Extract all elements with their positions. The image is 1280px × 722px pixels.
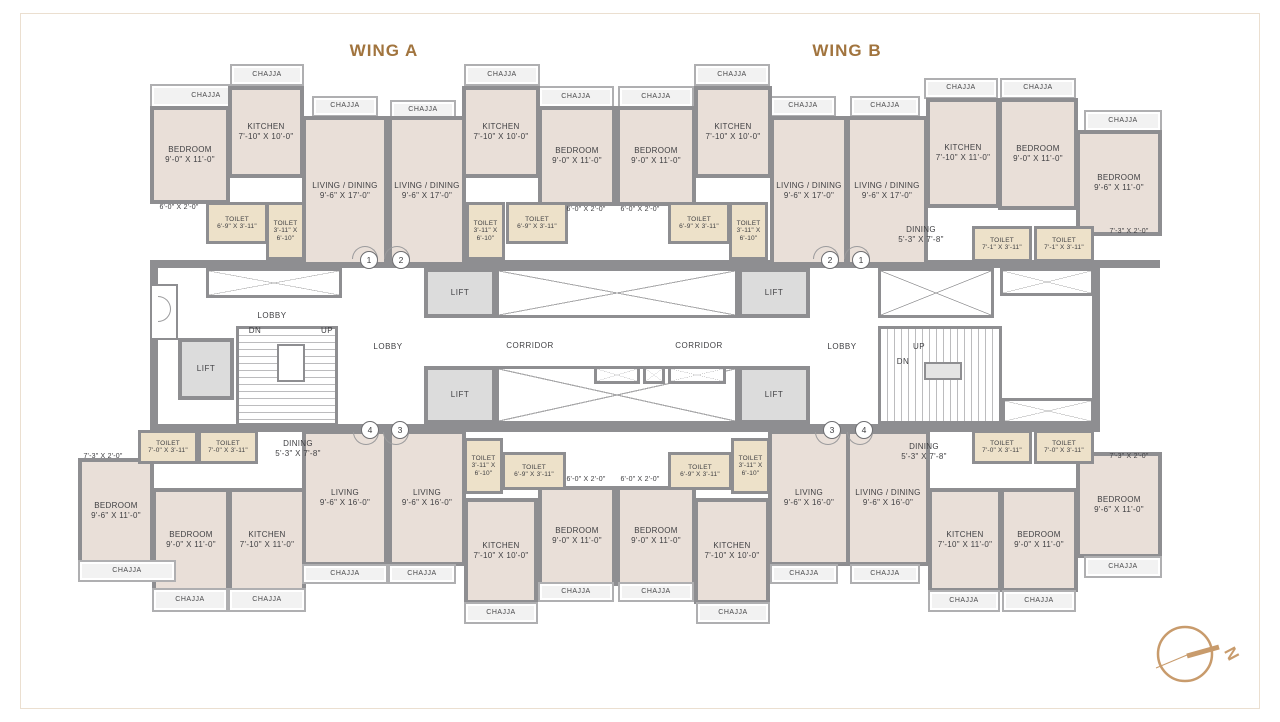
toilet-b1-1-label: TOILET (990, 237, 1014, 244)
lift-a-top-label: LIFT (451, 288, 469, 298)
chajja-a2-living-label: CHAJJA (408, 106, 437, 115)
chajja-a4-living: CHAJJA (302, 564, 388, 584)
chajja-a1-kitchen: CHAJJA (230, 64, 304, 86)
kitchen-b2-dims: 7'-10" X 10'-0" (705, 132, 760, 142)
kitchen-b4: KITCHEN7'-10" X 11'-0" (928, 488, 1002, 592)
chajja-b1-bedroom1: CHAJJA (1000, 78, 1076, 99)
toilet-b2-2-dims: 3'-11" X 6'-10" (732, 227, 765, 242)
chajja-b3-living: CHAJJA (770, 564, 838, 584)
chajja-a3-living: CHAJJA (388, 564, 456, 584)
dim-a2: 6'-0" X 2'-0" (560, 205, 612, 215)
toilet-a3-2-dims: 6'-9" X 3'-11" (514, 471, 554, 478)
flat-marker-a3-label: 3 (398, 425, 403, 436)
chajja-a1-living: CHAJJA (312, 96, 378, 117)
kitchen-a3: KITCHEN7'-10" X 10'-0" (464, 498, 538, 604)
dn-label-b-label: DN (897, 357, 910, 367)
kitchen-b4-dims: 7'-10" X 11'-0" (938, 540, 992, 550)
up-label-a-label: UP (321, 326, 333, 336)
living-dining-a2: LIVING / DINING9'-6" X 17'-0" (388, 116, 466, 266)
bedroom-a4-1-label: BEDROOM (94, 501, 137, 511)
flat-marker-a4-label: 4 (368, 425, 373, 436)
dim-a1-label: 6'-0" X 2'-0" (159, 204, 198, 213)
chajja-a1-living-label: CHAJJA (330, 102, 359, 111)
chajja-b4-kitchen-label: CHAJJA (949, 597, 978, 606)
bedroom-b2: BEDROOM9'-0" X 11'-0" (616, 106, 696, 206)
toilet-a2-1: TOILET3'-11" X 6'-10" (466, 202, 505, 260)
stair-landing-a (277, 344, 305, 382)
chajja-a1-kitchen-label: CHAJJA (252, 71, 281, 80)
dim-b1-label: 7'-3" X 2'-0" (1109, 228, 1148, 237)
flat-marker-b1: 1 (852, 251, 870, 269)
chajja-a4-bedroom2: CHAJJA (152, 588, 228, 612)
chajja-b1-living-label: CHAJJA (870, 102, 899, 111)
flat-marker-a2-label: 2 (399, 255, 404, 266)
toilet-a1-1-dims: 6'-9" X 3'-11" (217, 223, 257, 230)
chajja-a3-bedroom-label: CHAJJA (561, 588, 590, 597)
lobby-b-label: LOBBY (816, 341, 868, 353)
bedroom-b2-dims: 9'-0" X 11'-0" (631, 156, 681, 166)
kitchen-a1: KITCHEN7'-10" X 10'-0" (228, 86, 304, 178)
living-dining-b2-dims: 9'-6" X 17'-0" (784, 191, 834, 201)
toilet-a4-2-dims: 7'-0" X 3'-11" (208, 447, 248, 454)
chajja-b2-kitchen-label: CHAJJA (717, 71, 746, 80)
kitchen-b1-label: KITCHEN (944, 143, 981, 153)
chajja-a3-kitchen-label: CHAJJA (486, 609, 515, 618)
chajja-a4-bedroom1: CHAJJA (78, 560, 176, 582)
toilet-b3-2-label: TOILET (739, 455, 763, 462)
living-dining-b1-dims: 9'-6" X 17'-0" (862, 191, 912, 201)
bedroom-b3-dims: 9'-0" X 11'-0" (631, 536, 681, 546)
toilet-a4-1: TOILET7'-0" X 3'-11" (138, 430, 198, 464)
kitchen-a1-dims: 7'-10" X 10'-0" (238, 132, 293, 142)
bedroom-a2: BEDROOM9'-0" X 11'-0" (538, 106, 616, 206)
toilet-b1-2-label: TOILET (1052, 237, 1076, 244)
duct-small-3 (668, 366, 726, 384)
dim-b1: 7'-3" X 2'-0" (1100, 227, 1158, 237)
flat-marker-a1: 1 (360, 251, 378, 269)
toilet-a3-1-label: TOILET (472, 455, 496, 462)
bedroom-b1-2: BEDROOM9'-6" X 11'-0" (1076, 130, 1162, 236)
dim-b2: 6'-0" X 2'-0" (614, 205, 666, 215)
chajja-a3-living-label: CHAJJA (407, 570, 436, 579)
chajja-b2-bedroom-label: CHAJJA (641, 93, 670, 102)
chajja-b1-kitchen: CHAJJA (924, 78, 998, 99)
toilet-b2-2: TOILET3'-11" X 6'-10" (729, 202, 768, 260)
toilet-b2-2-label: TOILET (737, 220, 761, 227)
bedroom-a4-2-dims: 9'-0" X 11'-0" (166, 540, 216, 550)
duct-core-a (206, 268, 342, 298)
lift-b-top: LIFT (738, 268, 810, 318)
chajja-a3-bedroom: CHAJJA (538, 582, 614, 602)
up-label-b-label: UP (913, 342, 925, 352)
dining-a4-label-dims: 5'-3" X 7'-8" (275, 449, 321, 459)
corridor-label-1-label: CORRIDOR (506, 341, 554, 351)
duct-top-central (496, 268, 738, 318)
duct-small-2 (643, 366, 665, 384)
toilet-b1-1: TOILET7'-1" X 3'-11" (972, 226, 1032, 262)
toilet-b2-1-label: TOILET (687, 216, 711, 223)
bedroom-a2-label: BEDROOM (555, 146, 598, 156)
living-dining-b4-label: LIVING / DINING (855, 488, 920, 498)
dim-a2-label: 6'-0" X 2'-0" (566, 206, 605, 215)
flat-marker-b4: 4 (855, 421, 873, 439)
toilet-a1-1-label: TOILET (225, 216, 249, 223)
toilet-b2-1: TOILET6'-9" X 3'-11" (668, 202, 730, 244)
bedroom-a4-1-dims: 9'-6" X 11'-0" (91, 511, 141, 521)
kitchen-b1-dims: 7'-10" X 11'-0" (936, 153, 990, 163)
duct-core-b (878, 268, 994, 318)
compass-north-label: N (1220, 644, 1243, 664)
toilet-a4-1-dims: 7'-0" X 3'-11" (148, 447, 188, 454)
lobby-a-label-label: LOBBY (373, 342, 402, 352)
bedroom-a3: BEDROOM9'-0" X 11'-0" (538, 486, 616, 586)
lobby-b-label-label: LOBBY (827, 342, 856, 352)
toilet-a3-2: TOILET6'-9" X 3'-11" (502, 452, 566, 490)
living-b3: LIVING9'-6" X 16'-0" (768, 430, 850, 566)
chajja-b4-living: CHAJJA (850, 564, 920, 584)
bedroom-b1-1-label: BEDROOM (1016, 144, 1059, 154)
dim-a3-label: 6'-0" X 2'-0" (566, 476, 605, 485)
bedroom-b4-2-dims: 9'-6" X 11'-0" (1094, 505, 1144, 515)
north-compass-icon: N (1145, 610, 1265, 700)
kitchen-b1: KITCHEN7'-10" X 11'-0" (926, 98, 1000, 208)
chajja-a2-bedroom: CHAJJA (538, 86, 614, 108)
bedroom-b1-2-dims: 9'-6" X 11'-0" (1094, 183, 1144, 193)
chajja-a2-bedroom-label: CHAJJA (561, 93, 590, 102)
bedroom-a2-dims: 9'-0" X 11'-0" (552, 156, 602, 166)
bedroom-a3-label: BEDROOM (555, 526, 598, 536)
living-dining-a1-label: LIVING / DINING (312, 181, 377, 191)
flat-marker-a4: 4 (361, 421, 379, 439)
living-a3-label: LIVING (413, 488, 441, 498)
kitchen-a3-label: KITCHEN (482, 541, 519, 551)
living-dining-a1-dims: 9'-6" X 17'-0" (320, 191, 370, 201)
kitchen-b2: KITCHEN7'-10" X 10'-0" (694, 86, 772, 178)
chajja-b2-living: CHAJJA (770, 96, 836, 117)
toilet-b4-1: TOILET7'-0" X 3'-11" (972, 430, 1032, 464)
chajja-a4-kitchen: CHAJJA (228, 588, 306, 612)
floor-plan: CHAJJACHAJJACHAJJACHAJJACHAJJACHAJJACHAJ… (0, 0, 1280, 722)
chajja-b4-bedroom2: CHAJJA (1084, 556, 1162, 578)
dining-b4-label-dims: 5'-3" X 7'-8" (901, 452, 947, 462)
chajja-b4-living-label: CHAJJA (870, 570, 899, 579)
chajja-a3-kitchen: CHAJJA (464, 602, 538, 624)
lobby-core-a-label: LOBBY (247, 310, 297, 322)
kitchen-a2-dims: 7'-10" X 10'-0" (473, 132, 528, 142)
toilet-b3-1-dims: 6'-9" X 3'-11" (680, 471, 720, 478)
chajja-a2-kitchen: CHAJJA (464, 64, 540, 86)
dining-a4-label-label: DINING (283, 439, 313, 449)
toilet-b1-2: TOILET7'-1" X 3'-11" (1034, 226, 1094, 262)
chajja-b3-kitchen: CHAJJA (696, 602, 770, 624)
toilet-a2-1-label: TOILET (474, 220, 498, 227)
living-dining-a2-dims: 9'-6" X 17'-0" (402, 191, 452, 201)
flat-marker-a2: 2 (392, 251, 410, 269)
chajja-b3-living-label: CHAJJA (789, 570, 818, 579)
kitchen-b3-label: KITCHEN (713, 541, 750, 551)
chajja-b3-bedroom: CHAJJA (618, 582, 694, 602)
dim-a4-label: 7'-3" X 2'-0" (83, 453, 122, 462)
dining-b4-label: DINING5'-3" X 7'-8" (888, 442, 960, 462)
chajja-b1-bedroom2: CHAJJA (1084, 110, 1162, 132)
bedroom-b1-1: BEDROOM9'-0" X 11'-0" (998, 98, 1078, 210)
kitchen-a2-label: KITCHEN (482, 122, 519, 132)
duct-core-b-top-right (1000, 268, 1094, 296)
kitchen-a2: KITCHEN7'-10" X 10'-0" (462, 86, 540, 178)
chajja-a2-kitchen-label: CHAJJA (487, 71, 516, 80)
duct-small-1 (594, 366, 640, 384)
chajja-b3-kitchen-label: CHAJJA (718, 609, 747, 618)
kitchen-b2-label: KITCHEN (714, 122, 751, 132)
toilet-b3-1: TOILET6'-9" X 3'-11" (668, 452, 732, 490)
corridor-label-2: CORRIDOR (663, 340, 735, 352)
bedroom-b1-2-label: BEDROOM (1097, 173, 1140, 183)
chajja-b3-bedroom-label: CHAJJA (641, 588, 670, 597)
chajja-b4-bedroom2-label: CHAJJA (1108, 563, 1137, 572)
flat-marker-a3: 3 (391, 421, 409, 439)
toilet-a2-2-label: TOILET (525, 216, 549, 223)
kitchen-a4: KITCHEN7'-10" X 11'-0" (228, 488, 306, 592)
toilet-a4-2-label: TOILET (216, 440, 240, 447)
lift-core-a: LIFT (178, 338, 234, 400)
living-a4-label: LIVING (331, 488, 359, 498)
lift-b-top-label: LIFT (765, 288, 783, 298)
dining-b1-label-label: DINING (906, 225, 936, 235)
toilet-a4-1-label: TOILET (156, 440, 180, 447)
flat-marker-b2: 2 (821, 251, 839, 269)
toilet-b4-1-dims: 7'-0" X 3'-11" (982, 447, 1022, 454)
bedroom-a4-2-label: BEDROOM (169, 530, 212, 540)
chajja-b4-kitchen: CHAJJA (928, 590, 1000, 612)
toilet-b3-2: TOILET3'-11" X 6'-10" (731, 438, 770, 494)
chajja-b1-living: CHAJJA (850, 96, 920, 117)
toilet-b1-2-dims: 7'-1" X 3'-11" (1044, 244, 1084, 251)
toilet-b2-1-dims: 6'-9" X 3'-11" (679, 223, 719, 230)
bedroom-a1: BEDROOM9'-0" X 11'-0" (150, 106, 230, 204)
living-a4-dims: 9'-6" X 16'-0" (320, 498, 370, 508)
toilet-a1-2-label: TOILET (274, 220, 298, 227)
toilet-b3-1-label: TOILET (688, 464, 712, 471)
corridor-label-1: CORRIDOR (494, 340, 566, 352)
dim-b2-label: 6'-0" X 2'-0" (620, 206, 659, 215)
toilet-b4-1-label: TOILET (990, 440, 1014, 447)
kitchen-b4-label: KITCHEN (946, 530, 983, 540)
flat-marker-b3-label: 3 (830, 425, 835, 436)
chajja-b4-bedroom1-label: CHAJJA (1024, 597, 1053, 606)
chajja-b2-bedroom: CHAJJA (618, 86, 694, 108)
lobby-core-a-label-label: LOBBY (257, 311, 286, 321)
toilet-b4-2-label: TOILET (1052, 440, 1076, 447)
dim-b4-label: 7'-3" X 2'-0" (1109, 453, 1148, 462)
living-dining-a2-label: LIVING / DINING (394, 181, 459, 191)
dim-a3: 6'-0" X 2'-0" (560, 475, 612, 485)
dim-b3-label: 6'-0" X 2'-0" (620, 476, 659, 485)
bedroom-b4-2-label: BEDROOM (1097, 495, 1140, 505)
lift-core-a-label: LIFT (197, 364, 215, 374)
kitchen-a3-dims: 7'-10" X 10'-0" (473, 551, 528, 561)
chajja-b1-kitchen-label: CHAJJA (946, 84, 975, 93)
dim-b3: 6'-0" X 2'-0" (614, 475, 666, 485)
toilet-a3-1-dims: 3'-11" X 6'-10" (467, 462, 500, 477)
toilet-a3-1: TOILET3'-11" X 6'-10" (464, 438, 503, 494)
dim-a1: 6'-0" X 2'-0" (152, 203, 206, 213)
kitchen-a4-label: KITCHEN (248, 530, 285, 540)
flat-marker-b3: 3 (823, 421, 841, 439)
lift-a-bottom-label: LIFT (451, 390, 469, 400)
bedroom-b3: BEDROOM9'-0" X 11'-0" (616, 486, 696, 586)
chajja-a4-living-label: CHAJJA (330, 570, 359, 579)
bedroom-a1-dims: 9'-0" X 11'-0" (165, 155, 215, 165)
kitchen-a1-label: KITCHEN (247, 122, 284, 132)
toilet-a1-2: TOILET3'-11" X 6'-10" (266, 202, 305, 260)
toilet-a4-2: TOILET7'-0" X 3'-11" (198, 430, 258, 464)
dim-b4: 7'-3" X 2'-0" (1100, 452, 1158, 462)
chajja-b2-kitchen: CHAJJA (694, 64, 770, 86)
bedroom-b4-1-dims: 9'-0" X 11'-0" (1014, 540, 1064, 550)
flat-marker-b1-label: 1 (859, 255, 864, 266)
dn-label-b: DN (892, 356, 914, 368)
lift-a-top: LIFT (424, 268, 496, 318)
chajja-a4-bedroom2-label: CHAJJA (175, 596, 204, 605)
chajja-a4-bedroom1-label: CHAJJA (112, 567, 141, 576)
stair-landing-b (924, 362, 962, 380)
toilet-a2-1-dims: 3'-11" X 6'-10" (469, 227, 502, 242)
lift-b-bottom-label: LIFT (765, 390, 783, 400)
living-dining-b4-dims: 9'-6" X 16'-0" (863, 498, 913, 508)
living-dining-b2-label: LIVING / DINING (776, 181, 841, 191)
bedroom-b4-1-label: BEDROOM (1017, 530, 1060, 540)
up-label-b: UP (908, 341, 930, 353)
dn-label-a-label: DN (249, 326, 262, 336)
dining-b4-label-label: DINING (909, 442, 939, 452)
toilet-b1-1-dims: 7'-1" X 3'-11" (982, 244, 1022, 251)
dining-b1-label: DINING5'-3" X 7'-8" (885, 225, 957, 245)
living-a3-dims: 9'-6" X 16'-0" (402, 498, 452, 508)
up-label-a: UP (316, 325, 338, 337)
toilet-a1-1: TOILET6'-9" X 3'-11" (206, 202, 268, 244)
chajja-a1-bedroom-label: CHAJJA (191, 92, 220, 101)
chajja-b2-living-label: CHAJJA (788, 102, 817, 111)
living-dining-b2: LIVING / DINING9'-6" X 17'-0" (770, 116, 848, 266)
toilet-a2-2: TOILET6'-9" X 3'-11" (506, 202, 568, 244)
toilet-a3-2-label: TOILET (522, 464, 546, 471)
duct-core-b-bottom-right (1002, 398, 1094, 424)
chajja-b4-bedroom1: CHAJJA (1002, 590, 1076, 612)
dn-label-a: DN (244, 325, 266, 337)
flat-marker-a1-label: 1 (367, 255, 372, 266)
living-dining-b1-label: LIVING / DINING (854, 181, 919, 191)
dining-b1-label-dims: 5'-3" X 7'-8" (898, 235, 944, 245)
kitchen-a4-dims: 7'-10" X 11'-0" (240, 540, 294, 550)
toilet-a2-2-dims: 6'-9" X 3'-11" (517, 223, 557, 230)
bedroom-b3-label: BEDROOM (634, 526, 677, 536)
flat-marker-b2-label: 2 (828, 255, 833, 266)
bedroom-b4-2: BEDROOM9'-6" X 11'-0" (1076, 452, 1162, 558)
bedroom-a4-1: BEDROOM9'-6" X 11'-0" (78, 458, 154, 564)
toilet-b4-2-dims: 7'-0" X 3'-11" (1044, 447, 1084, 454)
living-b3-label: LIVING (795, 488, 823, 498)
chajja-b1-bedroom2-label: CHAJJA (1108, 117, 1137, 126)
chajja-b1-bedroom1-label: CHAJJA (1023, 84, 1052, 93)
toilet-a1-2-dims: 3'-11" X 6'-10" (269, 227, 302, 242)
dim-a4: 7'-3" X 2'-0" (74, 452, 132, 462)
lift-a-bottom: LIFT (424, 366, 496, 424)
living-b3-dims: 9'-6" X 16'-0" (784, 498, 834, 508)
bedroom-b1-1-dims: 9'-0" X 11'-0" (1013, 154, 1063, 164)
lift-b-bottom: LIFT (738, 366, 810, 424)
chajja-a4-kitchen-label: CHAJJA (252, 596, 281, 605)
toilet-b4-2: TOILET7'-0" X 3'-11" (1034, 430, 1094, 464)
dining-a4-label: DINING5'-3" X 7'-8" (262, 439, 334, 459)
living-dining-a1: LIVING / DINING9'-6" X 17'-0" (302, 116, 388, 266)
bedroom-a3-dims: 9'-0" X 11'-0" (552, 536, 602, 546)
lobby-a-label: LOBBY (362, 341, 414, 353)
living-a3: LIVING9'-6" X 16'-0" (388, 430, 466, 566)
kitchen-b3-dims: 7'-10" X 10'-0" (704, 551, 759, 561)
floor-plan-canvas: WING A WING B CHAJJACHAJJACHAJJACHAJJACH… (0, 0, 1280, 722)
toilet-b3-2-dims: 3'-11" X 6'-10" (734, 462, 767, 477)
bedroom-b4-1: BEDROOM9'-0" X 11'-0" (1000, 488, 1078, 592)
corridor-label-2-label: CORRIDOR (675, 341, 723, 351)
kitchen-b3: KITCHEN7'-10" X 10'-0" (694, 498, 770, 604)
flat-marker-b4-label: 4 (862, 425, 867, 436)
bedroom-a1-label: BEDROOM (168, 145, 211, 155)
bedroom-b2-label: BEDROOM (634, 146, 677, 156)
